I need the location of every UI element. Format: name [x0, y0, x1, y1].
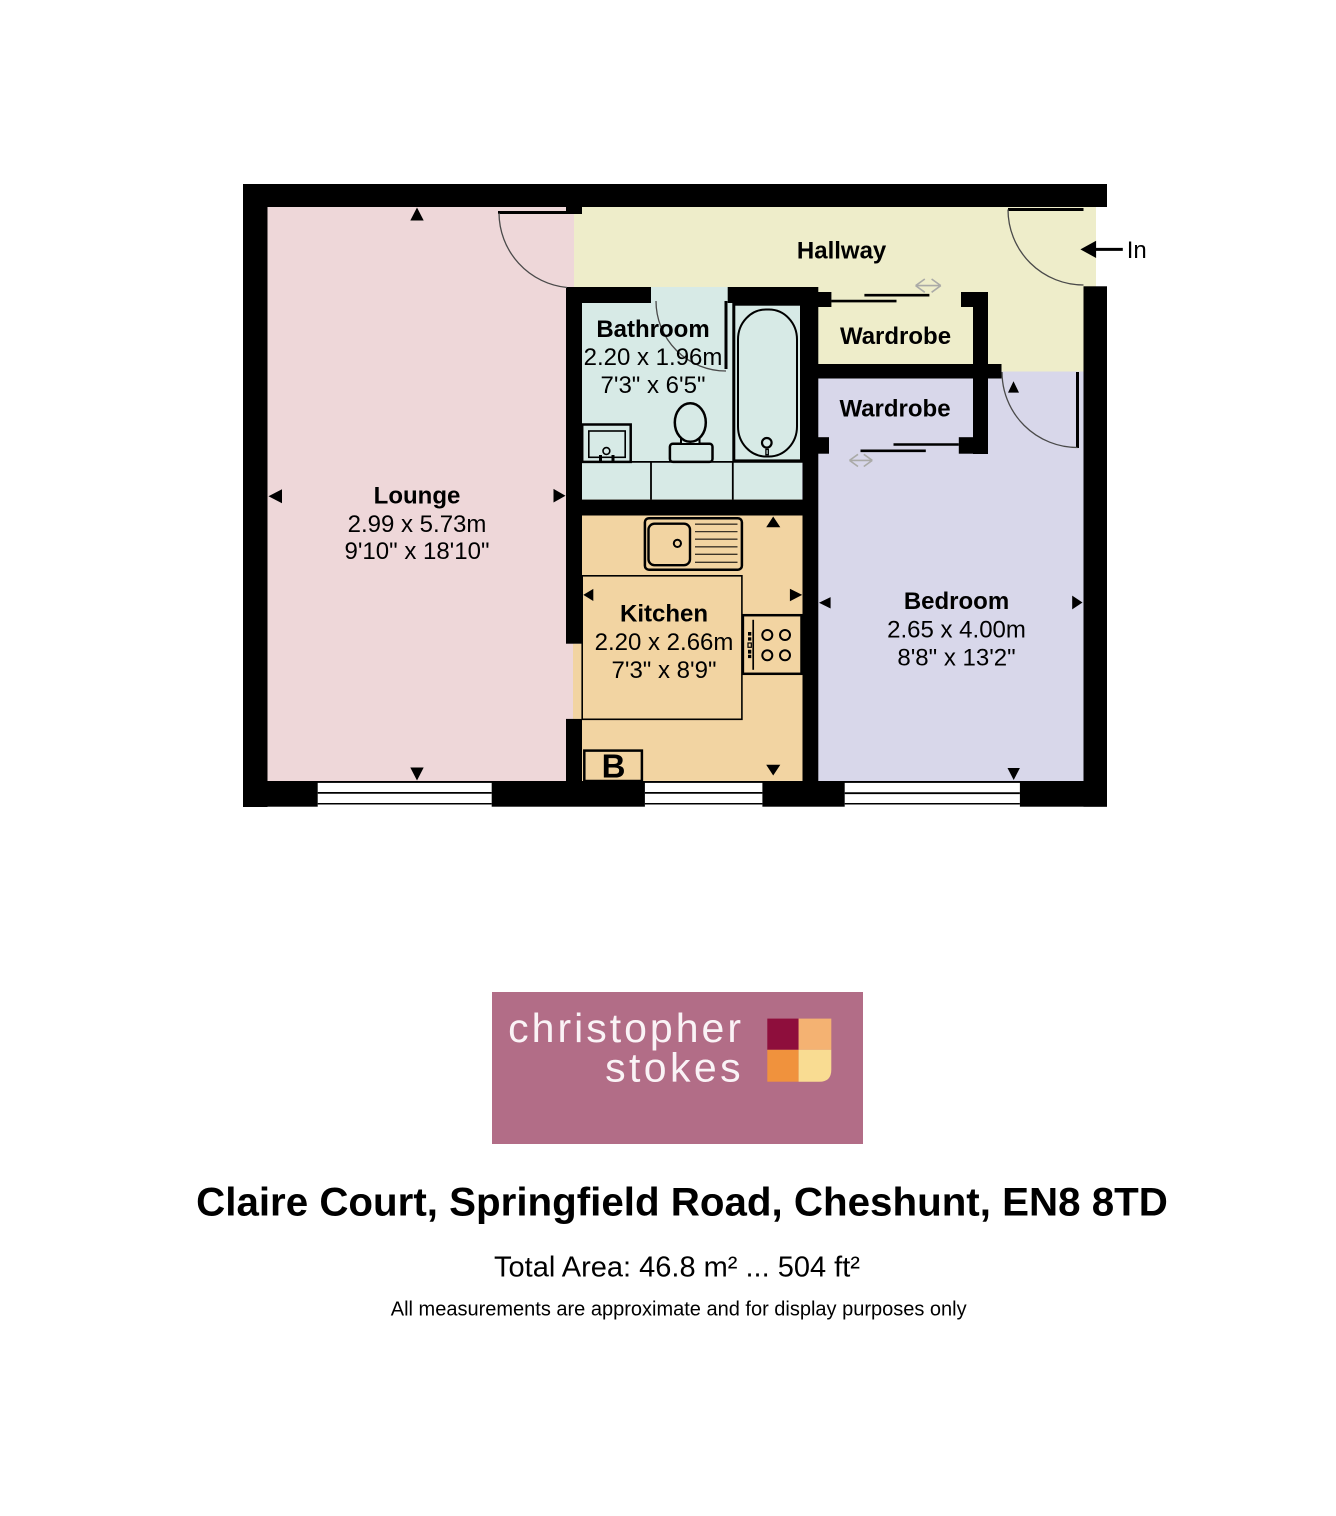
svg-text:Claire Court, Springfield Road: Claire Court, Springfield Road, Cheshunt… — [196, 1179, 1168, 1224]
svg-text:7'3" x 8'9": 7'3" x 8'9" — [612, 657, 717, 684]
svg-text:2.99 x 5.73m: 2.99 x 5.73m — [348, 511, 487, 538]
svg-text:All measurements are approxima: All measurements are approximate and for… — [391, 1299, 967, 1321]
svg-text:2.65 x 4.00m: 2.65 x 4.00m — [887, 617, 1026, 644]
svg-text:2.20 x 1.96m: 2.20 x 1.96m — [584, 344, 723, 371]
svg-text:Wardrobe: Wardrobe — [839, 396, 950, 423]
svg-text:Wardrobe: Wardrobe — [840, 323, 951, 350]
svg-text:8'8" x 13'2": 8'8" x 13'2" — [897, 645, 1015, 672]
svg-text:2.20 x 2.66m: 2.20 x 2.66m — [595, 629, 734, 656]
svg-text:Bedroom: Bedroom — [904, 588, 1009, 615]
svg-text:Bathroom: Bathroom — [596, 316, 709, 343]
svg-text:9'10" x 18'10": 9'10" x 18'10" — [345, 538, 490, 565]
svg-text:Hallway: Hallway — [797, 237, 887, 264]
svg-text:7'3" x 6'5": 7'3" x 6'5" — [601, 372, 706, 399]
svg-text:In: In — [1127, 237, 1147, 264]
svg-text:Total Area: 46.8 m² ... 504 ft: Total Area: 46.8 m² ... 504 ft² — [494, 1252, 860, 1284]
svg-text:Lounge: Lounge — [374, 483, 461, 510]
svg-text:Kitchen: Kitchen — [620, 600, 708, 627]
svg-text:B: B — [602, 748, 626, 785]
svg-text:stokes: stokes — [605, 1045, 744, 1091]
